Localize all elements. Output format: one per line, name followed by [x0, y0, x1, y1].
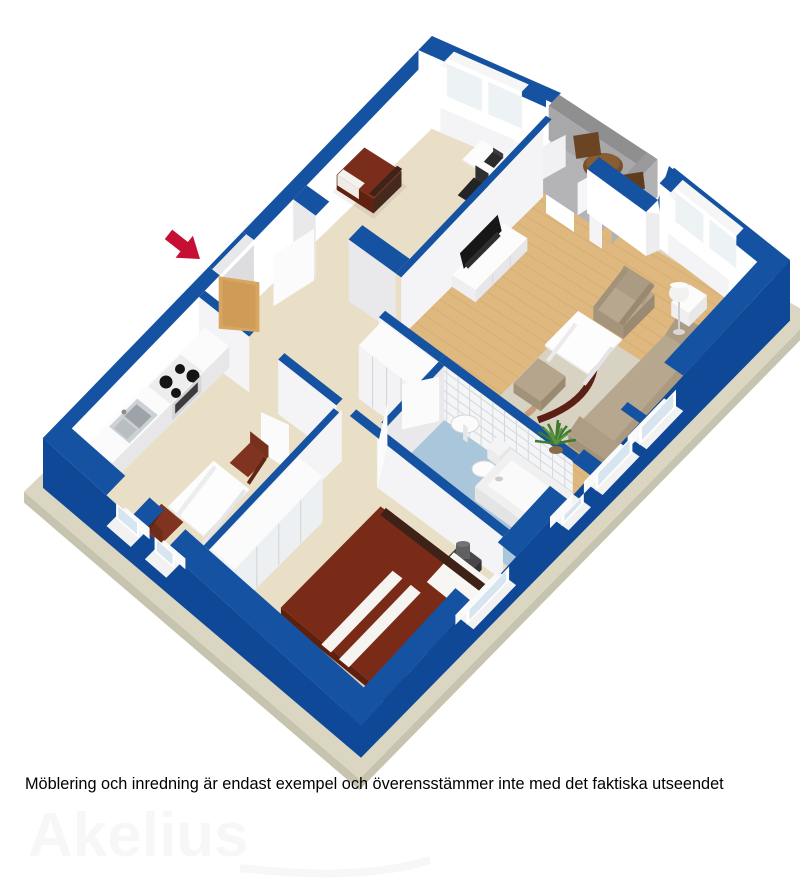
svg-text:Möblering och inredning är end: Möblering och inredning är endast exempe… — [25, 775, 724, 793]
svg-text:Akelius: Akelius — [28, 801, 249, 870]
